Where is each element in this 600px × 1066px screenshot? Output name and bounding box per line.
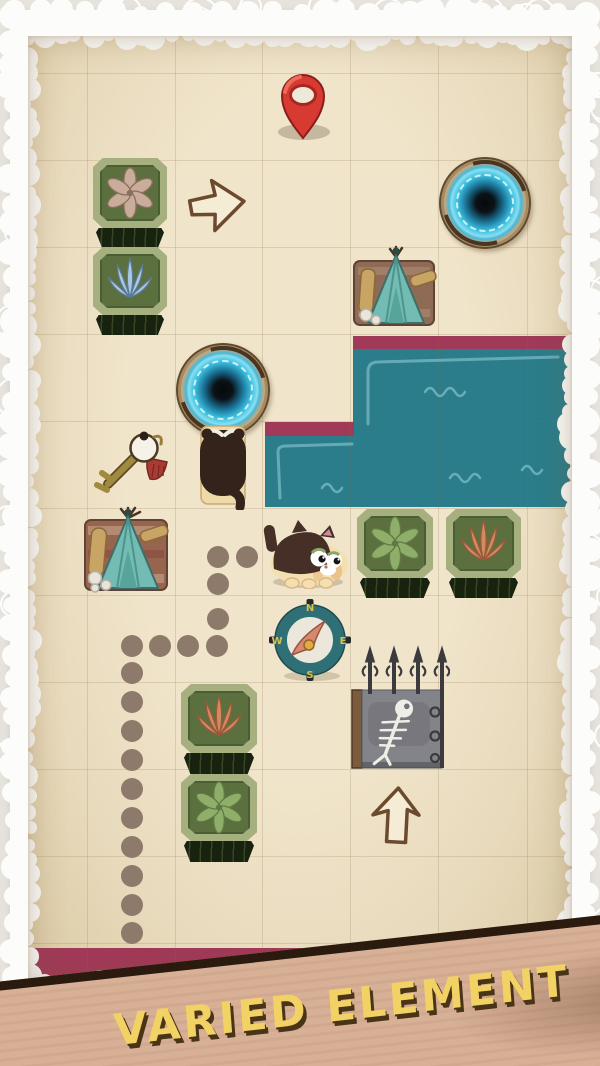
flower-tile-green-row[interactable]	[357, 509, 433, 598]
cloud-puff	[76, 1, 93, 18]
trail-dot	[207, 573, 229, 595]
cat-round[interactable]	[262, 517, 350, 589]
trail-dot	[207, 608, 229, 630]
compass-west-label: W	[271, 636, 282, 647]
cloud-puff	[549, 3, 567, 21]
trail-dot	[121, 865, 143, 887]
trail-dot	[177, 635, 199, 657]
torn-edge-bump	[13, 535, 39, 561]
trail-dot	[121, 749, 143, 771]
torn-edge-bump	[21, 918, 34, 931]
key-icon[interactable]	[92, 428, 172, 500]
cloud-puff	[133, 6, 149, 22]
torn-edge-bump	[561, 235, 579, 253]
torn-edge-bump	[565, 869, 579, 883]
torn-edge-bump	[165, 28, 179, 42]
trail-dot	[121, 836, 143, 858]
map-grid-line	[175, 38, 176, 983]
torn-edge-bump	[561, 754, 582, 775]
torn-edge-bump	[193, 23, 216, 46]
flower-tile-green-col[interactable]	[181, 774, 257, 862]
cloud-puff	[263, 1, 282, 20]
cat-dark-sleeping[interactable]	[193, 420, 253, 510]
torn-edge-bump	[563, 214, 583, 234]
trail-dot	[121, 778, 143, 800]
torn-edge-bump	[564, 446, 582, 464]
torn-edge-bump	[19, 474, 34, 489]
location-pin-icon	[270, 66, 336, 144]
arrow-right-icon	[186, 168, 250, 238]
trail-dot	[121, 691, 143, 713]
cloud-puff	[50, 0, 73, 21]
cloud-puff	[468, 2, 494, 28]
leaf-tile-orange-col[interactable]	[181, 684, 257, 774]
torn-edge-bump	[19, 456, 38, 475]
torn-edge-bump	[16, 162, 40, 186]
torn-edge-bump	[567, 882, 581, 896]
torn-edge-bump	[559, 555, 579, 575]
tent-top[interactable]	[350, 243, 438, 329]
compass-north-label: N	[306, 603, 314, 614]
cloud-puff	[528, 4, 544, 20]
torn-edge-bump	[22, 302, 35, 315]
trail-dot	[121, 662, 143, 684]
trail-dot	[206, 635, 228, 657]
cloud-puff	[3, 483, 20, 500]
torn-edge-bump	[19, 505, 41, 527]
banner-title: VARIED ELEMENT	[112, 956, 571, 1056]
torn-edge-bump	[13, 764, 37, 788]
trail-dot	[207, 546, 229, 568]
torn-edge-bump	[19, 751, 33, 765]
torn-edge-bump	[17, 78, 41, 102]
trail-dot	[121, 635, 143, 657]
cloud-doodle-icon	[594, 722, 600, 750]
torn-edge-bump	[399, 28, 416, 45]
torn-edge-bump	[562, 603, 576, 617]
flower-tile-blue[interactable]	[93, 247, 167, 335]
trail-dot	[236, 546, 258, 568]
torn-edge-bump	[21, 947, 40, 966]
portal-top[interactable]	[439, 157, 531, 249]
torn-edge-bump	[564, 850, 580, 866]
arrow-up-icon	[363, 778, 429, 848]
cloud-puff	[578, 565, 600, 590]
torn-edge-bump	[142, 27, 165, 50]
flower-tile-tan[interactable]	[93, 158, 167, 248]
cloud-puff	[236, 1, 260, 25]
trail-dot	[149, 635, 171, 657]
torn-edge-bump	[567, 317, 583, 333]
cloud-puff	[30, 0, 53, 22]
trail-dot	[121, 922, 143, 944]
trail-dot	[121, 894, 143, 916]
torn-edge-bump	[20, 34, 32, 46]
torn-edge-bump	[19, 863, 40, 884]
cloud-puff	[577, 854, 596, 873]
cloud-puff	[581, 388, 597, 404]
map-grid-line	[30, 856, 570, 857]
map-grid-line	[30, 682, 570, 683]
trail-dot	[121, 720, 143, 742]
game-screen: N W E S	[0, 0, 600, 1066]
cloud-puff	[491, 5, 507, 21]
torn-edge-bump	[328, 25, 351, 48]
water-waves-decoration	[260, 330, 572, 515]
cloud-puff	[3, 597, 19, 613]
map-grid-line	[30, 769, 570, 770]
torn-edge-bump	[22, 839, 35, 852]
torn-edge-bump	[20, 882, 41, 903]
compass-south-label: S	[306, 670, 313, 681]
cloud-puff	[211, 1, 233, 23]
torn-edge-bump	[19, 804, 36, 821]
gate-fishbone[interactable]	[346, 644, 450, 774]
leaf-tile-orange-row[interactable]	[446, 509, 521, 598]
torn-edge-bump	[442, 24, 465, 47]
cloud-puff	[0, 3, 25, 29]
compass[interactable]: N W E S	[268, 598, 352, 682]
torn-edge-bump	[563, 88, 585, 110]
tent-left[interactable]	[82, 506, 170, 594]
trail-dot	[121, 807, 143, 829]
